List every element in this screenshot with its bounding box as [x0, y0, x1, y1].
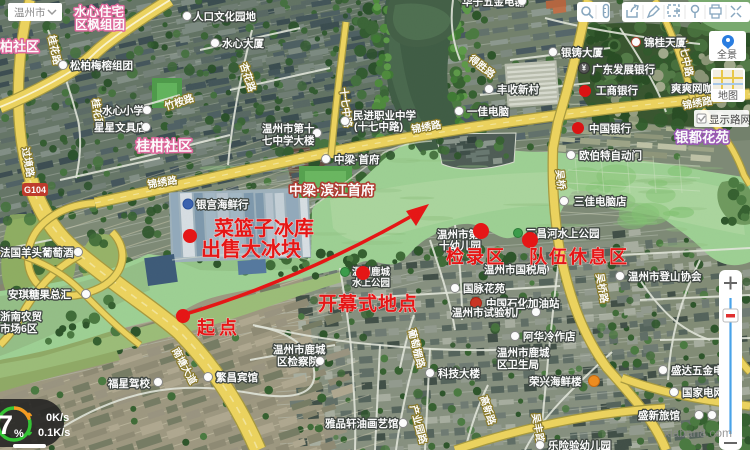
svg-text:全景: 全景: [717, 48, 737, 61]
svg-text:显示路网: 显示路网: [709, 113, 750, 126]
svg-text:温州市: 温州市: [14, 6, 46, 19]
svg-text:%: %: [14, 428, 24, 440]
svg-text:xiaban8.com: xiaban8.com: [664, 426, 732, 440]
svg-text:0K/s: 0K/s: [46, 412, 69, 424]
svg-text:0.1K/s: 0.1K/s: [38, 427, 70, 439]
svg-text:7: 7: [0, 410, 13, 440]
svg-text:地图: 地图: [718, 89, 738, 102]
